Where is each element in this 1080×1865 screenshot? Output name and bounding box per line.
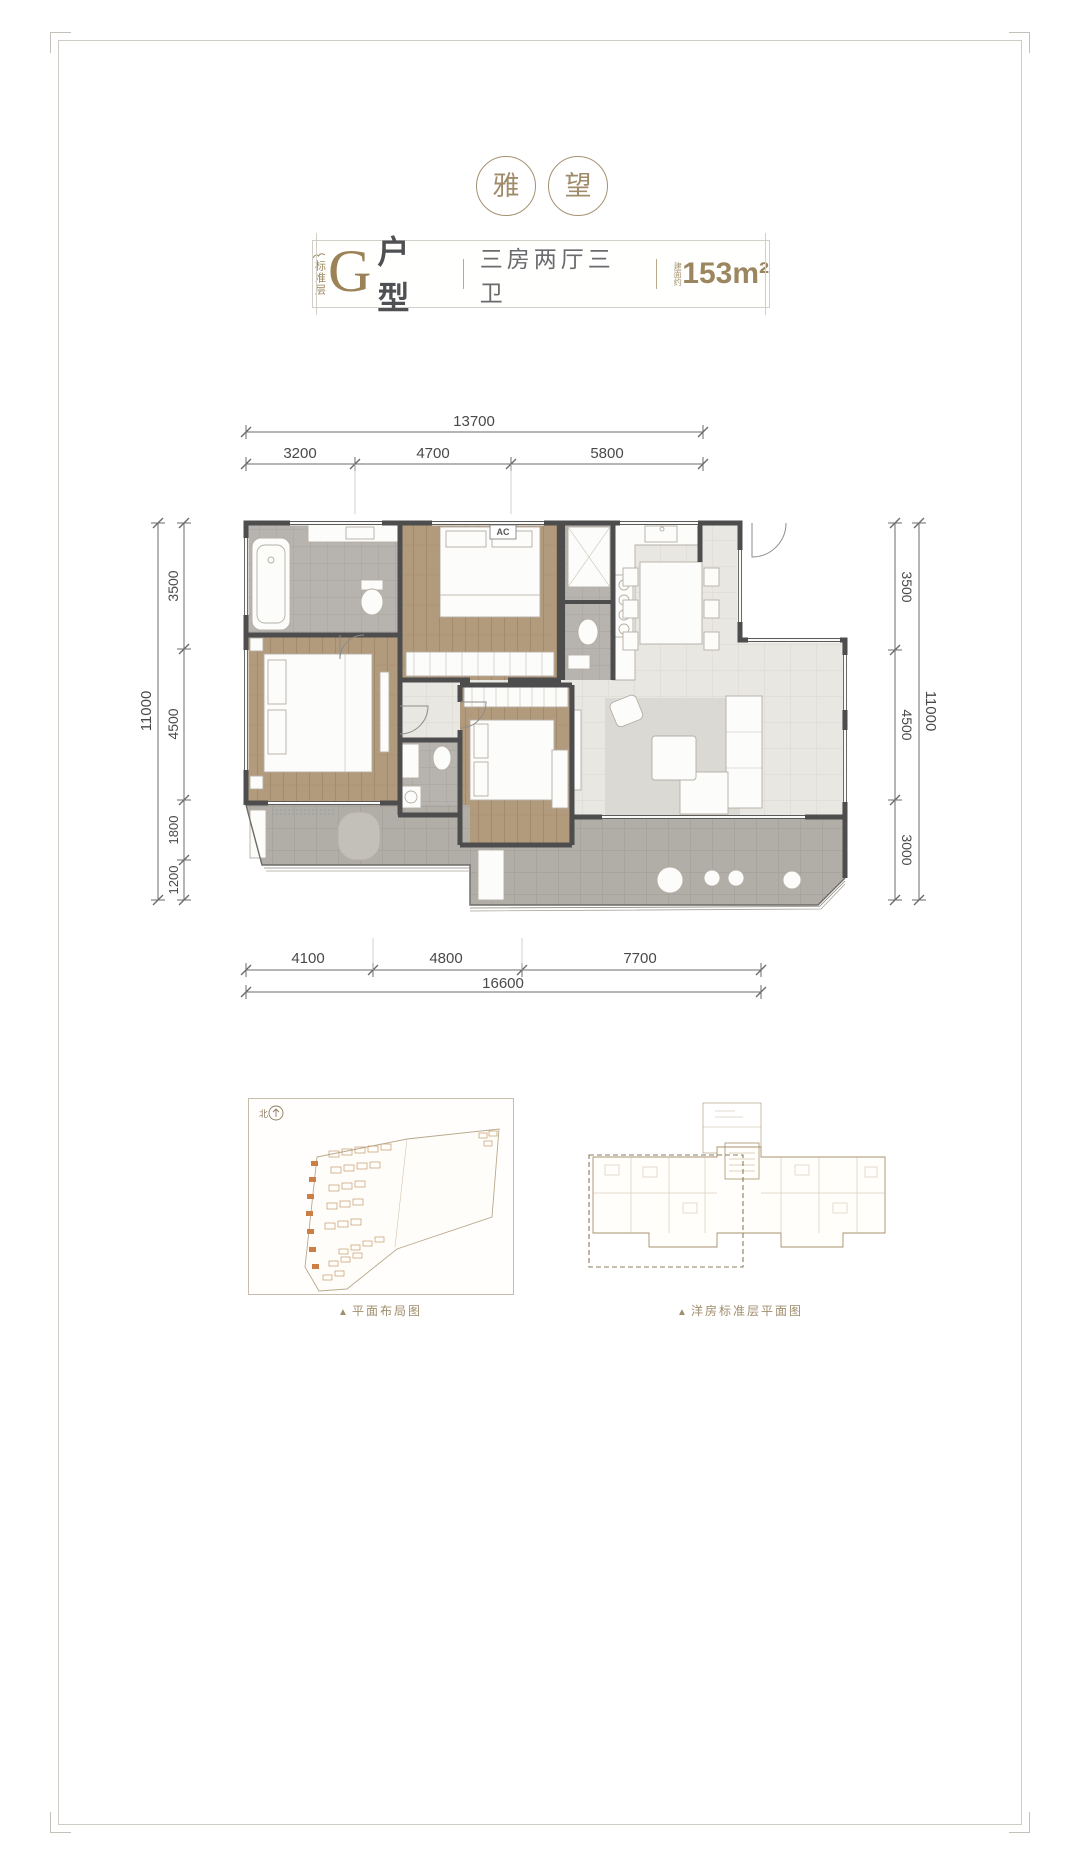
ac-label: AC	[497, 527, 510, 537]
dim-top-seg3: 5800	[590, 445, 623, 462]
caption-triangle-icon: ▲	[677, 1307, 687, 1318]
dim-right-total: 11000	[922, 691, 939, 732]
unit-type-label: 户型	[377, 227, 446, 319]
north-indicator: 北	[259, 1106, 283, 1120]
floorplan-page: { "logo": { "char_left": "雅", "char_righ…	[0, 0, 1080, 1865]
dim-right-seg3: 3000	[899, 834, 915, 865]
dim-top-total: 13700	[453, 413, 495, 430]
dining-set	[623, 562, 719, 650]
frame-corner-icon	[50, 1812, 71, 1833]
toilet	[578, 619, 598, 645]
north-arrow-icon	[273, 1109, 279, 1117]
shower	[568, 527, 610, 587]
site-plan-caption: ▲平面布局图	[248, 1302, 512, 1319]
bedroom3-furniture	[464, 687, 568, 808]
dim-bottom-seg1: 4100	[291, 950, 324, 967]
site-plan: 北	[249, 1099, 511, 1292]
dim-bottom-seg2: 4800	[429, 950, 462, 967]
logo-circle-left: 雅	[476, 156, 536, 216]
toilet	[361, 580, 383, 615]
dim-left-total: 11000	[140, 691, 155, 732]
wardrobe	[406, 652, 554, 676]
logo-char-left: 雅	[493, 173, 520, 200]
tower-above	[703, 1103, 761, 1153]
dim-left-seg2: 4500	[165, 708, 181, 739]
caption-triangle-icon: ▲	[338, 1307, 348, 1318]
dim-bottom-seg3: 7700	[623, 950, 656, 967]
frame-corner-icon	[1009, 1812, 1030, 1833]
floor-plan: AC 13700 3200 4700 5800 11000 3500 4500 …	[140, 410, 940, 1010]
north-label: 北	[259, 1109, 268, 1119]
key-plan-caption-text: 洋房标准层平面图	[691, 1304, 803, 1318]
ac-unit: AC	[490, 525, 516, 539]
layout-text: 三房两厅三卫	[480, 240, 641, 308]
site-plan-box: 北	[248, 1098, 514, 1295]
bird-icon	[313, 252, 325, 260]
floor-label: 标准层	[314, 260, 325, 296]
floor-label-block: 标准层	[313, 252, 325, 296]
divider	[656, 259, 657, 289]
unit-title-card: 标准层 G 户型 三房两厅三卫 建面约 153m²	[312, 240, 770, 308]
frame-corner-icon	[50, 32, 71, 53]
site-boundary	[305, 1129, 499, 1291]
divider	[463, 259, 464, 289]
logo-circle-right: 望	[548, 156, 608, 216]
dim-right-seg2: 4500	[899, 709, 915, 740]
unit-letter: G	[328, 241, 371, 301]
bath-sink	[346, 527, 374, 539]
brand-logo: 雅 望	[476, 156, 608, 216]
key-plan-box	[585, 1085, 895, 1285]
frame-corner-icon	[1009, 32, 1030, 53]
building-outline	[593, 1147, 885, 1247]
dim-top-seg2: 4700	[416, 445, 449, 462]
bathtub	[252, 538, 290, 630]
master-bed	[250, 638, 389, 789]
dim-right-seg1: 3500	[899, 571, 915, 602]
basin	[568, 655, 590, 669]
logo-char-right: 望	[565, 173, 592, 200]
key-plan	[585, 1085, 895, 1285]
dim-left-seg3: 1800	[166, 816, 181, 845]
coffee-table	[652, 736, 696, 780]
dim-left-seg1: 3500	[165, 570, 181, 601]
bed-small	[440, 527, 540, 617]
area-value: 153m²	[682, 257, 769, 291]
area-block: 建面约 153m²	[673, 257, 769, 291]
dim-bottom-total: 16600	[482, 975, 524, 992]
area-prefix: 建面约	[673, 262, 681, 286]
tv-console	[574, 710, 581, 790]
dim-left-seg4: 1200	[166, 866, 181, 895]
site-plan-caption-text: 平面布局图	[352, 1304, 422, 1318]
dim-top-seg1: 3200	[283, 445, 316, 462]
key-plan-caption: ▲洋房标准层平面图	[585, 1302, 895, 1319]
